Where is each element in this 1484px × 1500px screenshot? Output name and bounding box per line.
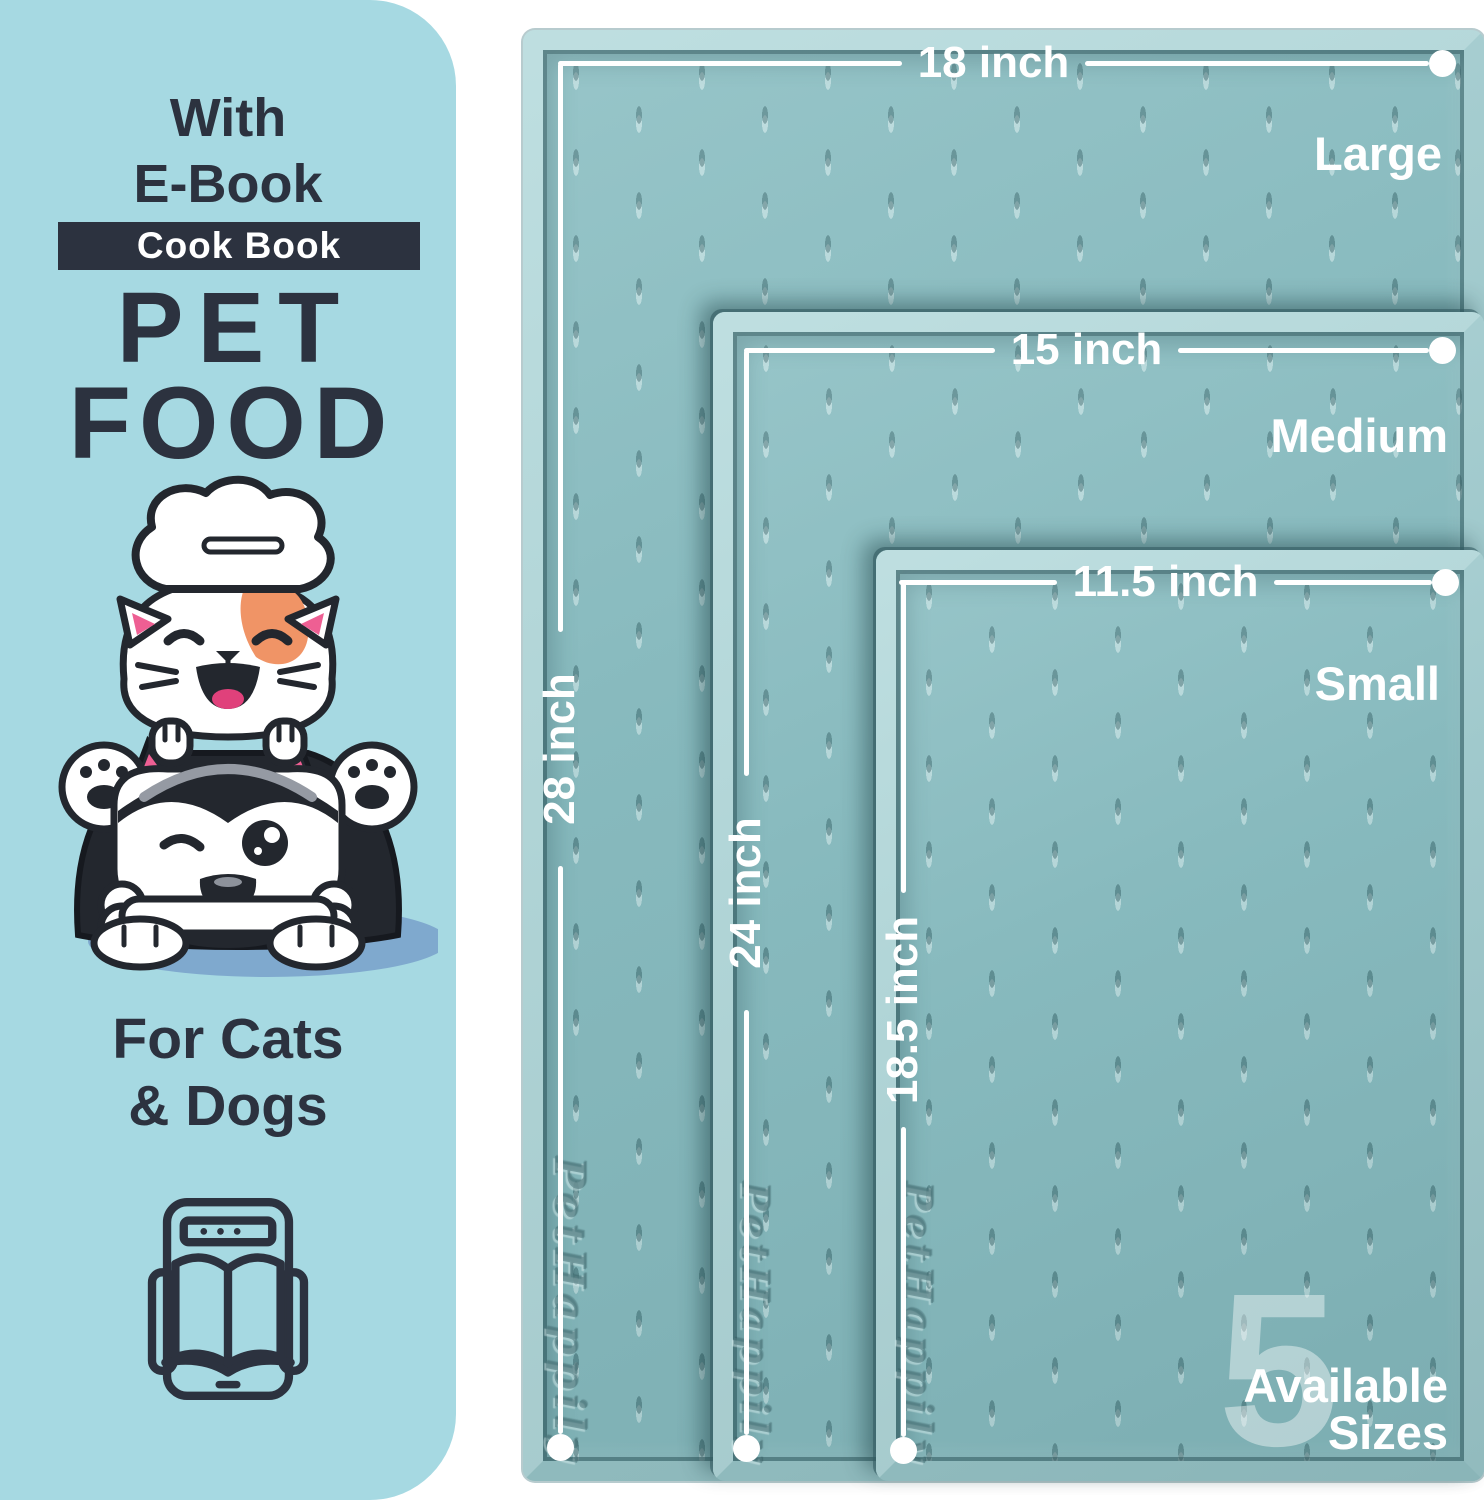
height-label-box: 28 inch bbox=[543, 632, 577, 866]
height-measure-medium: 24 inch bbox=[729, 350, 763, 1462]
sizes-caption-line1: Available bbox=[1243, 1362, 1448, 1409]
height-label-medium: 24 inch bbox=[721, 817, 771, 969]
width-measure-medium: 15 inch bbox=[744, 320, 1456, 380]
sizes-caption-line2: Sizes bbox=[1243, 1409, 1448, 1456]
size-label-medium: Medium bbox=[1270, 408, 1448, 463]
height-label-small: 18.5 inch bbox=[878, 915, 928, 1103]
measure-dot bbox=[890, 1437, 917, 1464]
measure-dot bbox=[1429, 50, 1456, 77]
measure-dot bbox=[733, 1435, 760, 1462]
measure-dot bbox=[547, 1434, 574, 1461]
measure-line bbox=[744, 350, 749, 776]
height-label-large: 28 inch bbox=[535, 673, 585, 825]
measure-dot bbox=[1432, 569, 1459, 596]
width-label-small: 11.5 inch bbox=[1073, 557, 1259, 607]
measure-dot bbox=[1429, 337, 1456, 364]
size-label-small: Small bbox=[1315, 656, 1440, 711]
ebook-subtitle-line2: E-Book bbox=[0, 152, 456, 218]
height-label-box: 24 inch bbox=[729, 776, 763, 1010]
audience-line2: & Dogs bbox=[0, 1073, 456, 1140]
audience-text: For Cats & Dogs bbox=[0, 1006, 456, 1139]
measure-line bbox=[899, 580, 1057, 585]
ebook-subtitle-line1: With bbox=[0, 86, 456, 152]
brand-panel: With E-Book Cook Book PET FOOD bbox=[0, 0, 456, 1500]
measure-line bbox=[558, 63, 563, 632]
width-label-medium: 15 inch bbox=[1011, 325, 1163, 375]
sizes-caption: Available Sizes bbox=[1243, 1362, 1448, 1456]
height-measure-large: 28 inch bbox=[543, 63, 577, 1461]
height-label-box: 18.5 inch bbox=[886, 893, 920, 1127]
ebook-icon bbox=[142, 1190, 314, 1408]
measure-line bbox=[558, 866, 563, 1435]
height-measure-small: 18.5 inch bbox=[886, 582, 920, 1464]
measure-line bbox=[744, 1010, 749, 1436]
measure-line bbox=[558, 61, 902, 66]
cat-dog-chef-illustration bbox=[18, 468, 438, 980]
width-measure-large: 18 inch bbox=[558, 33, 1456, 93]
width-label-large: 18 inch bbox=[918, 38, 1070, 88]
measure-line bbox=[901, 1127, 906, 1438]
product-title-line2: FOOD bbox=[0, 372, 456, 474]
size-label-large: Large bbox=[1314, 126, 1442, 181]
audience-line1: For Cats bbox=[0, 1006, 456, 1073]
width-measure-small: 11.5 inch bbox=[899, 552, 1459, 612]
measure-line bbox=[901, 582, 906, 893]
product-title-line1: PET bbox=[0, 278, 456, 378]
product-infographic: With E-Book Cook Book PET FOOD bbox=[0, 0, 1484, 1500]
ebook-subtitle: With E-Book bbox=[0, 86, 456, 218]
cookbook-badge: Cook Book bbox=[58, 222, 420, 270]
measure-line bbox=[1085, 61, 1429, 66]
measure-line bbox=[1178, 348, 1429, 353]
measure-line bbox=[1274, 580, 1432, 585]
measure-line bbox=[744, 348, 995, 353]
